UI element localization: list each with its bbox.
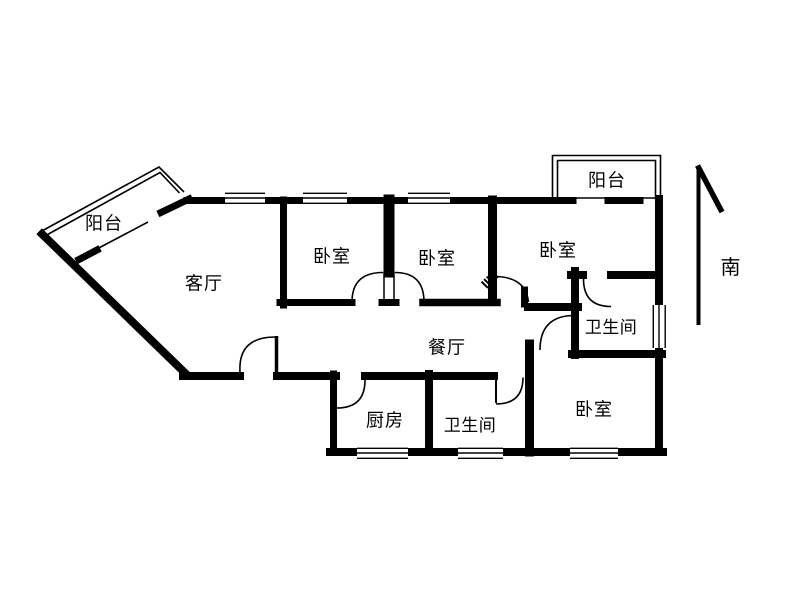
window-bedroom1 [303, 193, 347, 205]
room-label-balcony-top-right: 阳台 [588, 171, 626, 192]
floor-plan-drawing: 南 阳台 客厅 卧室 卧室 卧室 阳台 卫生间 餐厅 厨房 卫生间 卧室 [0, 0, 800, 600]
compass-label: 南 [721, 255, 742, 279]
compass-arrow-flag [698, 166, 723, 213]
wall-diagonal-left [42, 234, 185, 373]
bathroom2-door-arc [496, 378, 523, 405]
room-label-living-room: 客厅 [185, 274, 223, 295]
window-kitchen [357, 448, 408, 460]
bedroom1-door-arc [352, 273, 383, 303]
bedroom4-door-arc [540, 316, 575, 351]
room-label-bedroom-4: 卧室 [575, 400, 613, 421]
entrance-door-arc [240, 337, 275, 372]
bathroom1-door-arc [584, 279, 612, 307]
room-label-kitchen: 厨房 [366, 411, 404, 432]
exterior-walls [42, 199, 663, 452]
kitchen-door-arc [337, 380, 365, 408]
window-bathroom1 [653, 305, 667, 348]
room-label-balcony-top-left: 阳台 [85, 214, 123, 235]
wall-top-left-stub [161, 199, 189, 213]
room-label-dining-room: 餐厅 [428, 338, 466, 359]
window-bedroom4 [570, 448, 618, 460]
room-label-bathroom-1: 卫生间 [585, 318, 638, 338]
balcony-tl-wall-stub [79, 250, 97, 260]
room-label-bathroom-2: 卫生间 [444, 416, 497, 436]
floor-plan-canvas: 南 阳台 客厅 卧室 卧室 卧室 阳台 卫生间 餐厅 厨房 卫生间 卧室 [0, 0, 800, 600]
room-label-bedroom-2: 卧室 [418, 249, 456, 270]
compass: 南 [698, 166, 742, 326]
room-label-bedroom-3: 卧室 [539, 241, 577, 262]
window-bathroom2 [458, 448, 503, 460]
window-bedroom2 [408, 193, 450, 205]
window-living [225, 193, 265, 205]
bedroom2-door-arc [395, 273, 424, 303]
room-label-bedroom-1: 卧室 [313, 247, 351, 268]
